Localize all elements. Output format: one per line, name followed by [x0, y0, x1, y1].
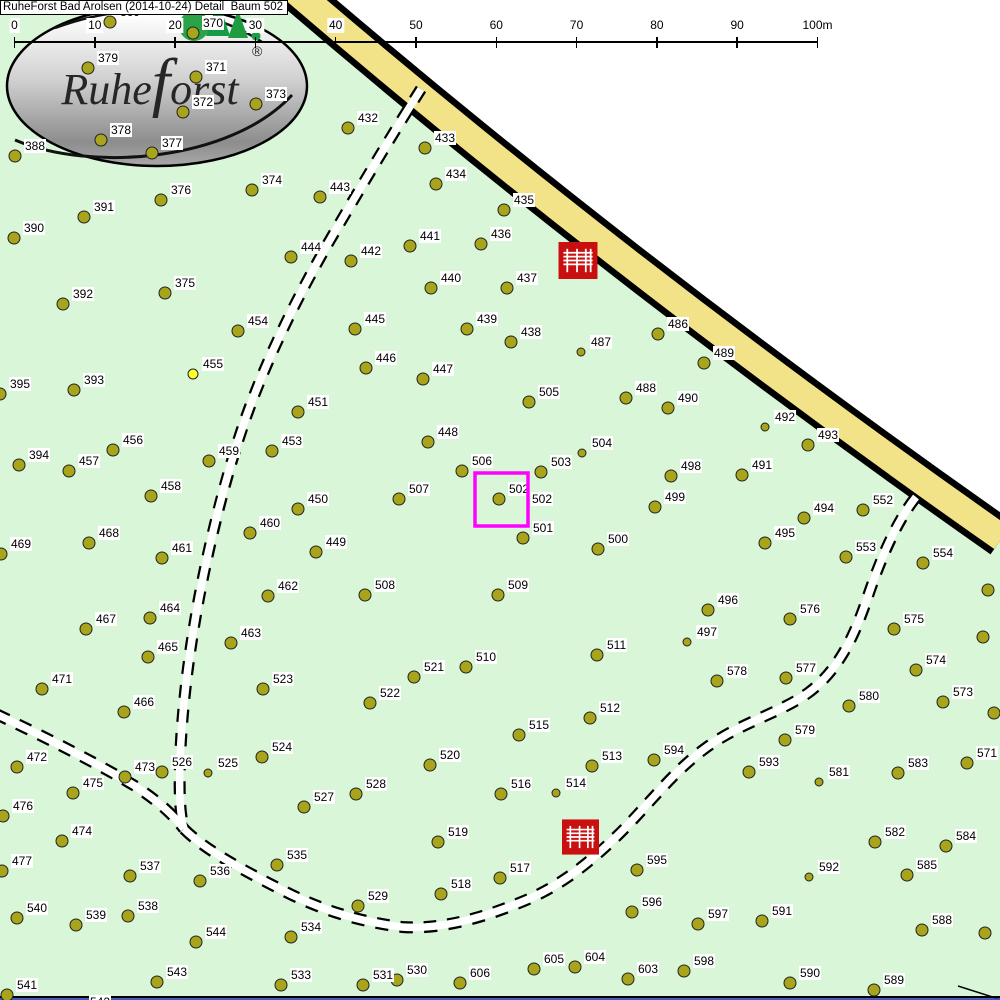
- scale-tick: [335, 37, 337, 48]
- scale-label: 30: [247, 18, 264, 33]
- scale-label: 70: [568, 18, 585, 33]
- scale-label: 50: [407, 18, 424, 33]
- scale-label: 60: [488, 18, 505, 33]
- forest-map: Ruheforst ® 3693703793713733723783773883…: [0, 0, 1000, 1000]
- scale-tick: [496, 37, 498, 48]
- scale-tick: [736, 37, 738, 48]
- scale-label: 40: [327, 18, 344, 33]
- scale-tick: [576, 37, 578, 48]
- scale-label: 0: [9, 18, 20, 33]
- scale-tick: [817, 37, 819, 48]
- scale-label: 10: [86, 18, 103, 33]
- scale-label: 80: [648, 18, 665, 33]
- scale-label: 100m: [800, 18, 834, 33]
- scale-tick: [94, 37, 96, 48]
- scale-tick: [14, 37, 16, 48]
- scale-tick: [415, 37, 417, 48]
- scale-tick: [255, 37, 257, 48]
- scale-tick: [174, 37, 176, 48]
- scale-tick: [656, 37, 658, 48]
- scale-label: 20: [166, 18, 183, 33]
- scale-label: 90: [729, 18, 746, 33]
- map-title: RuheForst Bad Arolsen (2014-10-24) Detai…: [0, 0, 288, 15]
- scale-ruler: 0102030405060708090100m: [0, 0, 1000, 1000]
